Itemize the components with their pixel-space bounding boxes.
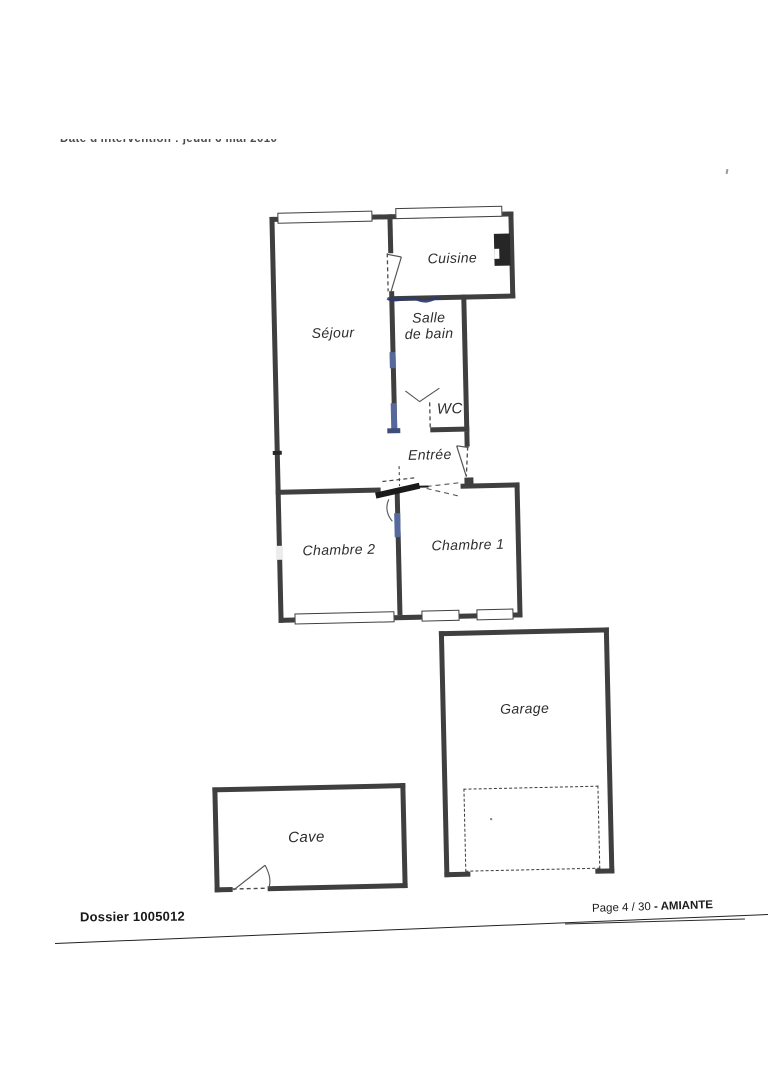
left-wall-tick bbox=[273, 451, 282, 455]
page-number-text: Page 4 / 30 bbox=[592, 901, 651, 915]
intervention-date-text: Date d'intervention : jeudi 6 mai 2010 bbox=[60, 139, 320, 145]
apartment-right-wall-lower bbox=[514, 482, 522, 617]
garage-bottom-wall-right-stub bbox=[595, 868, 614, 873]
room-label-cave: Cave bbox=[288, 828, 325, 846]
room-label-entree: Entrée bbox=[408, 446, 452, 463]
dossier-number: Dossier 1005012 bbox=[80, 909, 185, 925]
left-wall-scan-gap bbox=[276, 546, 283, 560]
blue-mark-divider-wall bbox=[394, 513, 401, 537]
cuisine-window bbox=[395, 206, 502, 219]
chambre2-top-wall bbox=[276, 488, 381, 495]
blue-mark-sejour-wall-upper bbox=[390, 352, 396, 368]
room-label-chambre-1: Chambre 1 bbox=[431, 536, 504, 554]
page-indicator: Page 4 / 30 - AMIANTE bbox=[592, 899, 713, 915]
wc-bottom-wall bbox=[430, 427, 469, 433]
sejour-cuisine-wall-upper bbox=[387, 214, 393, 253]
floor-plan: Séjour Cuisine Salle de bain WC Entrée C… bbox=[182, 190, 628, 910]
wc-door-swing bbox=[405, 388, 439, 402]
blue-mark-sejour-wall-lower bbox=[391, 403, 398, 429]
door-hinge-block bbox=[464, 477, 473, 486]
room-label-garage: Garage bbox=[500, 700, 549, 717]
cave-bottom-wall bbox=[268, 883, 408, 891]
scan-speck bbox=[726, 169, 729, 174]
cave-door-arc bbox=[265, 865, 270, 888]
cave-door-dashed bbox=[233, 888, 268, 889]
garage-right-wall bbox=[604, 627, 615, 873]
sejour-wall-end-cap bbox=[387, 428, 400, 433]
cuisine-bottom-wall bbox=[389, 293, 515, 301]
chambre1-door-swing-dashed bbox=[426, 483, 459, 497]
chambre2-door-pen-curve bbox=[387, 499, 393, 521]
chambre2-door-dashes bbox=[382, 478, 415, 482]
intervention-date-clipped: Date d'intervention : jeudi 6 mai 2010 bbox=[60, 139, 320, 147]
room-label-salle-de-bain: Salle de bain bbox=[403, 309, 456, 342]
entrance-door-swing bbox=[457, 446, 470, 477]
cave-door-leaf bbox=[233, 865, 266, 890]
cuisine-door-swing bbox=[387, 254, 402, 291]
apartment-left-wall bbox=[269, 217, 283, 623]
room-label-chambre-2: Chambre 2 bbox=[302, 541, 375, 559]
cuisine-door-dashed bbox=[387, 253, 388, 291]
cave-top-wall bbox=[212, 783, 405, 792]
chambre1-window-left bbox=[421, 610, 459, 622]
cave-bottom-wall-left-stub bbox=[215, 887, 233, 892]
garage-bottom-wall-left-stub bbox=[444, 872, 470, 878]
kitchen-flue-notch bbox=[494, 249, 499, 259]
entry-door-stub-wall bbox=[464, 432, 469, 447]
garage-door-dashed-outline bbox=[463, 786, 600, 872]
chambres-divider-wall bbox=[395, 488, 403, 615]
wc-door-dashed bbox=[430, 402, 431, 430]
room-label-wc: WC bbox=[437, 400, 463, 418]
garage-left-wall bbox=[439, 631, 450, 877]
cave-right-wall bbox=[400, 783, 407, 888]
chambre1-window-right bbox=[476, 609, 513, 621]
sejour-window bbox=[277, 211, 372, 224]
entrance-door-dashed bbox=[466, 447, 469, 477]
cave-left-wall bbox=[212, 787, 219, 892]
room-label-sejour: Séjour bbox=[311, 324, 354, 341]
garage-top-wall bbox=[439, 627, 609, 636]
report-type-text: - AMIANTE bbox=[654, 899, 713, 913]
chambre2-window bbox=[294, 611, 394, 624]
scanned-document-page: { "document": { "date_line": "Date d'int… bbox=[0, 0, 768, 1085]
room-label-cuisine: Cuisine bbox=[427, 249, 477, 266]
